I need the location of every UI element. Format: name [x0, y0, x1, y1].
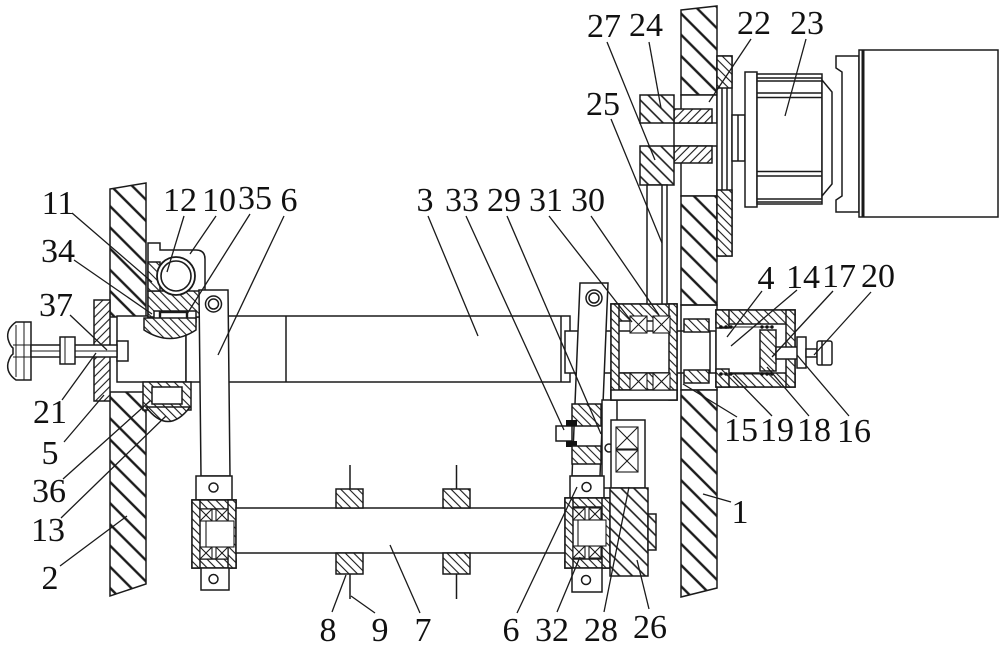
svg-text:14: 14: [786, 259, 820, 296]
svg-text:3: 3: [417, 182, 434, 219]
svg-text:5: 5: [42, 435, 59, 472]
svg-text:37: 37: [39, 287, 73, 324]
svg-text:9: 9: [372, 612, 389, 646]
svg-text:30: 30: [571, 182, 605, 219]
svg-text:1: 1: [732, 494, 749, 531]
svg-text:25: 25: [586, 86, 620, 123]
svg-text:23: 23: [790, 5, 824, 42]
svg-text:26: 26: [633, 609, 667, 646]
svg-text:35: 35: [238, 180, 272, 217]
svg-text:16: 16: [837, 413, 871, 450]
svg-text:2: 2: [42, 560, 59, 597]
svg-text:36: 36: [32, 473, 66, 510]
svg-text:18: 18: [797, 412, 831, 449]
svg-text:8: 8: [320, 612, 337, 646]
svg-text:17: 17: [822, 258, 856, 295]
svg-text:15: 15: [724, 412, 758, 449]
svg-text:6: 6: [281, 182, 298, 219]
svg-text:7: 7: [415, 612, 432, 646]
svg-text:11: 11: [42, 185, 75, 222]
svg-text:6: 6: [503, 612, 520, 646]
svg-text:32: 32: [535, 612, 569, 646]
svg-text:33: 33: [445, 182, 479, 219]
svg-text:21: 21: [33, 394, 67, 431]
svg-text:34: 34: [41, 233, 75, 270]
svg-text:10: 10: [202, 182, 236, 219]
svg-text:31: 31: [529, 182, 563, 219]
svg-text:24: 24: [629, 7, 663, 44]
svg-text:20: 20: [861, 258, 895, 295]
svg-text:12: 12: [163, 182, 197, 219]
svg-text:27: 27: [587, 8, 621, 45]
svg-text:13: 13: [31, 512, 65, 549]
svg-text:28: 28: [584, 612, 618, 646]
svg-text:22: 22: [737, 5, 771, 42]
svg-text:4: 4: [758, 260, 775, 297]
svg-text:29: 29: [487, 182, 521, 219]
svg-text:19: 19: [760, 412, 794, 449]
